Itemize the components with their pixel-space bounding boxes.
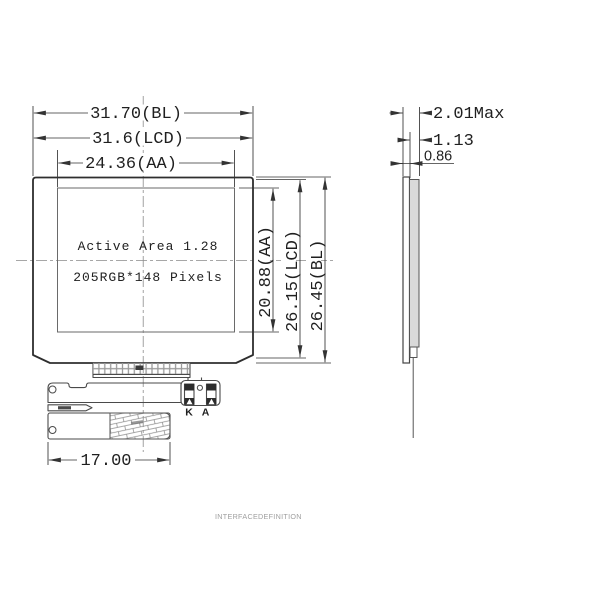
lcd-module-drawing: Active Area 1.28 205RGB*148 Pixels 31.70…	[0, 0, 600, 600]
footer-caption: INTERFACEDEFINITION	[215, 512, 302, 521]
fpc-band-mark	[136, 366, 144, 371]
side-fpc-bend	[410, 347, 417, 358]
dim-height-bl-group: 26.45(BL)	[306, 238, 328, 334]
dim-height-aa-group: 20.88(AA)	[254, 224, 276, 320]
dim-height-bl: 26.45(BL)	[309, 240, 328, 332]
mechanical-drawing-page: Active Area 1.28 205RGB*148 Pixels 31.70…	[0, 0, 600, 600]
fpc-hole-top	[49, 386, 56, 393]
side-backlight-profile	[403, 177, 410, 363]
active-area-label: Active Area 1.28	[78, 239, 219, 254]
dim-height-aa: 20.88(AA)	[257, 226, 276, 318]
pin-label-a: A	[202, 407, 210, 419]
fpc-strip	[48, 383, 181, 403]
pad-a-top	[207, 384, 217, 391]
dim-height-lcd: 26.15(LCD)	[284, 230, 303, 332]
fpc-hole-bottom	[49, 427, 56, 434]
dim-width-lcd: 31.6(LCD)	[92, 130, 184, 149]
front-view: Active Area 1.28 205RGB*148 Pixels 31.70…	[16, 96, 336, 471]
dim-width-aa: 24.36(AA)	[85, 155, 177, 174]
backlight-connector: K A	[181, 381, 220, 419]
pin-label-k: K	[185, 407, 193, 419]
dim-thickness-max: 2.01Max	[433, 105, 504, 124]
pad-k-top	[185, 384, 195, 391]
dim-height-lcd-group: 26.15(LCD)	[281, 229, 303, 333]
footer: INTERFACEDEFINITION	[215, 512, 302, 521]
side-lcd-glass	[410, 180, 420, 348]
dim-width-bl: 31.70(BL)	[90, 105, 182, 124]
dim-thickness-bl: 0.86	[424, 149, 452, 165]
side-view: 2.01Max 1.13 0.86	[390, 105, 505, 438]
resolution-label: 205RGB*148 Pixels	[73, 270, 223, 285]
fpc-slot-mark	[58, 406, 71, 409]
dim-fpc-width: 17.00	[80, 452, 131, 471]
active-area-rect	[58, 188, 235, 332]
connector-hole	[197, 385, 202, 390]
fpc-stiffener	[110, 413, 170, 439]
